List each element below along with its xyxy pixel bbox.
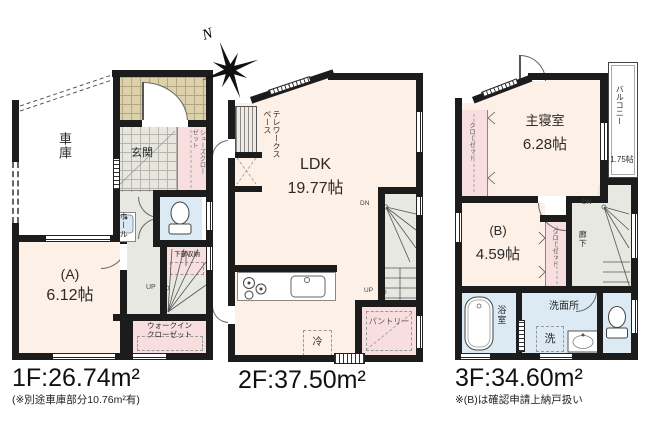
room-b-label: (B): [468, 224, 528, 239]
room-a-size: 6.12帖: [29, 287, 111, 305]
bath-label: 浴室: [496, 305, 506, 337]
laundry-box: 洗: [536, 326, 564, 352]
room-b-size: 4.59帖: [461, 246, 535, 263]
window: [113, 158, 120, 190]
kitchen-counter: [237, 272, 336, 301]
window: [206, 247, 213, 270]
dn-label: DN: [360, 200, 369, 207]
wall: [160, 240, 213, 247]
partition-line: [487, 110, 488, 196]
pantry-label: パントリー: [362, 317, 416, 326]
window: [133, 353, 166, 360]
bath-area: [462, 293, 518, 353]
wall: [378, 192, 385, 307]
window: [416, 316, 423, 348]
storage-dashed: [170, 262, 204, 275]
wall: [540, 215, 572, 222]
wall: [355, 300, 362, 355]
balcony-size: 1.75帖: [604, 155, 640, 164]
window: [46, 235, 110, 242]
wall: [228, 355, 423, 362]
wall: [153, 190, 160, 247]
bath-door-rail: [518, 320, 525, 352]
door-opening: [228, 139, 235, 158]
up-label: UP: [364, 287, 373, 294]
telework-desk: [235, 106, 257, 154]
door-opening: [228, 306, 235, 324]
master-bedroom-label: 主寝室: [505, 114, 585, 129]
door-opening: [142, 120, 188, 127]
laundry-label: 洗: [545, 333, 556, 346]
window: [455, 213, 462, 242]
compass-rose-icon: N: [196, 22, 270, 108]
master-bedroom-size: 6.28帖: [500, 136, 590, 153]
window: [416, 197, 423, 215]
bedroom-closet-area: [462, 110, 487, 196]
washroom-label: 洗面所: [533, 301, 595, 313]
window: [334, 353, 365, 364]
window: [631, 214, 638, 258]
dn-label: DN: [582, 199, 591, 206]
garage-boundary-dashed: [20, 75, 112, 111]
compass-n-label: N: [199, 25, 215, 44]
door-arc: [212, 306, 229, 323]
stairs-2f-area: [385, 194, 416, 307]
shoes-closet-label: シューズクローゼット: [179, 129, 205, 175]
hall-label: ホール: [119, 212, 128, 250]
ldk-size: 19.77帖: [258, 180, 373, 198]
bedroom-closet-label: クローゼット: [467, 122, 474, 184]
door-leaf: [142, 82, 144, 122]
floor1-area-label: 1F:26.74m²: [12, 364, 140, 393]
wall: [12, 100, 19, 162]
ldk-label: LDK: [268, 156, 363, 174]
wall: [235, 265, 337, 272]
floor3-area-label: 3F:34.60m²: [455, 364, 583, 393]
window: [206, 202, 213, 230]
wall: [160, 247, 167, 314]
corridor-label: 廊下: [578, 230, 587, 258]
entrance-label: 玄関: [131, 147, 153, 160]
wall: [597, 293, 603, 353]
partition-line: [177, 125, 178, 192]
walkin-closet-label: ウォークイン クローゼット: [133, 322, 206, 339]
wall: [328, 73, 423, 80]
window: [631, 300, 638, 333]
door-arc: [212, 140, 229, 157]
up-label: UP: [146, 284, 156, 292]
window: [540, 353, 572, 360]
under-stairs-storage-label: 下部収納: [172, 251, 202, 258]
wall: [155, 190, 213, 197]
window: [53, 353, 115, 360]
window: [461, 353, 490, 360]
fridge-box: 冷: [303, 330, 332, 356]
garage-shutter-dashed-wall: [12, 162, 19, 223]
telework-label: テレワークスペース: [257, 110, 281, 160]
garage-label: 車庫: [56, 132, 71, 172]
walkin-closet-line2: クローゼット: [147, 330, 192, 339]
wall: [126, 314, 133, 353]
room-b-closet-label: クローゼット: [550, 228, 557, 286]
floor-plan-canvas: N: [0, 0, 650, 430]
wall: [455, 286, 638, 293]
fridge-label: 冷: [313, 337, 323, 349]
wall: [528, 73, 608, 80]
partition-line: [545, 222, 546, 290]
window: [416, 112, 423, 152]
wall: [12, 235, 19, 360]
wall: [378, 187, 423, 194]
floor1-area-note: (※別途車庫部分10.76m²有): [12, 392, 140, 407]
toilet-1f-area: [158, 197, 202, 242]
floor2-area-label: 2F:37.50m²: [238, 366, 366, 395]
floor3-area-note: ※(B)は確認申請上納戸扱い: [455, 392, 583, 407]
toilet-3f-area: [603, 293, 631, 353]
balcony-label: バルコニー: [615, 85, 624, 147]
door-opening: [538, 196, 566, 203]
wall: [355, 300, 423, 307]
compass-star: [202, 42, 258, 98]
room-a-label: (A): [44, 266, 96, 282]
